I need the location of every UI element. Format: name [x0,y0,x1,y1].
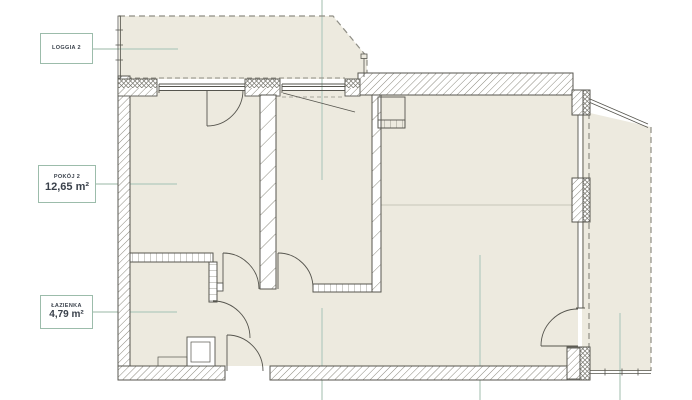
pier-a1 [118,79,157,96]
label-bathroom: ŁAZIENKA 4,79 m² [40,295,93,329]
label-loggia2-name: LOGGIA 2 [52,46,81,52]
label-bathroom-area: 4,79 m² [49,310,83,320]
wall-top-right [358,73,573,95]
floor-plan-page: LOGGIA 2 POKÓJ 2 12,65 m² ŁAZIENKA 4,79 … [0,0,692,400]
wall-room2-room1 [260,95,276,289]
label-room2-name: POKÓJ 2 [54,175,80,181]
pier-a2 [245,79,280,96]
loggia-post-cap [361,54,367,59]
right-loggia-floor [582,113,651,371]
wall-room1-hall [313,284,372,292]
wall-bottom-left [118,366,225,380]
floor-plan-drawing [0,0,692,400]
loggia2-floor [119,16,367,79]
apartment-floor [130,90,578,366]
floor-fills [119,16,651,371]
pier-a3 [345,79,360,96]
wall-bottom-right [270,366,567,380]
label-loggia2: LOGGIA 2 [40,33,93,64]
label-room2-area: 12,65 m² [45,182,89,193]
corner-pier-top-right [572,90,590,115]
pier-right-bottom [567,347,590,380]
wall-left [118,76,130,366]
wall-bathroom-top [130,253,213,262]
label-room2: POKÓJ 2 12,65 m² [38,165,96,203]
pier-right-middle [572,178,590,222]
